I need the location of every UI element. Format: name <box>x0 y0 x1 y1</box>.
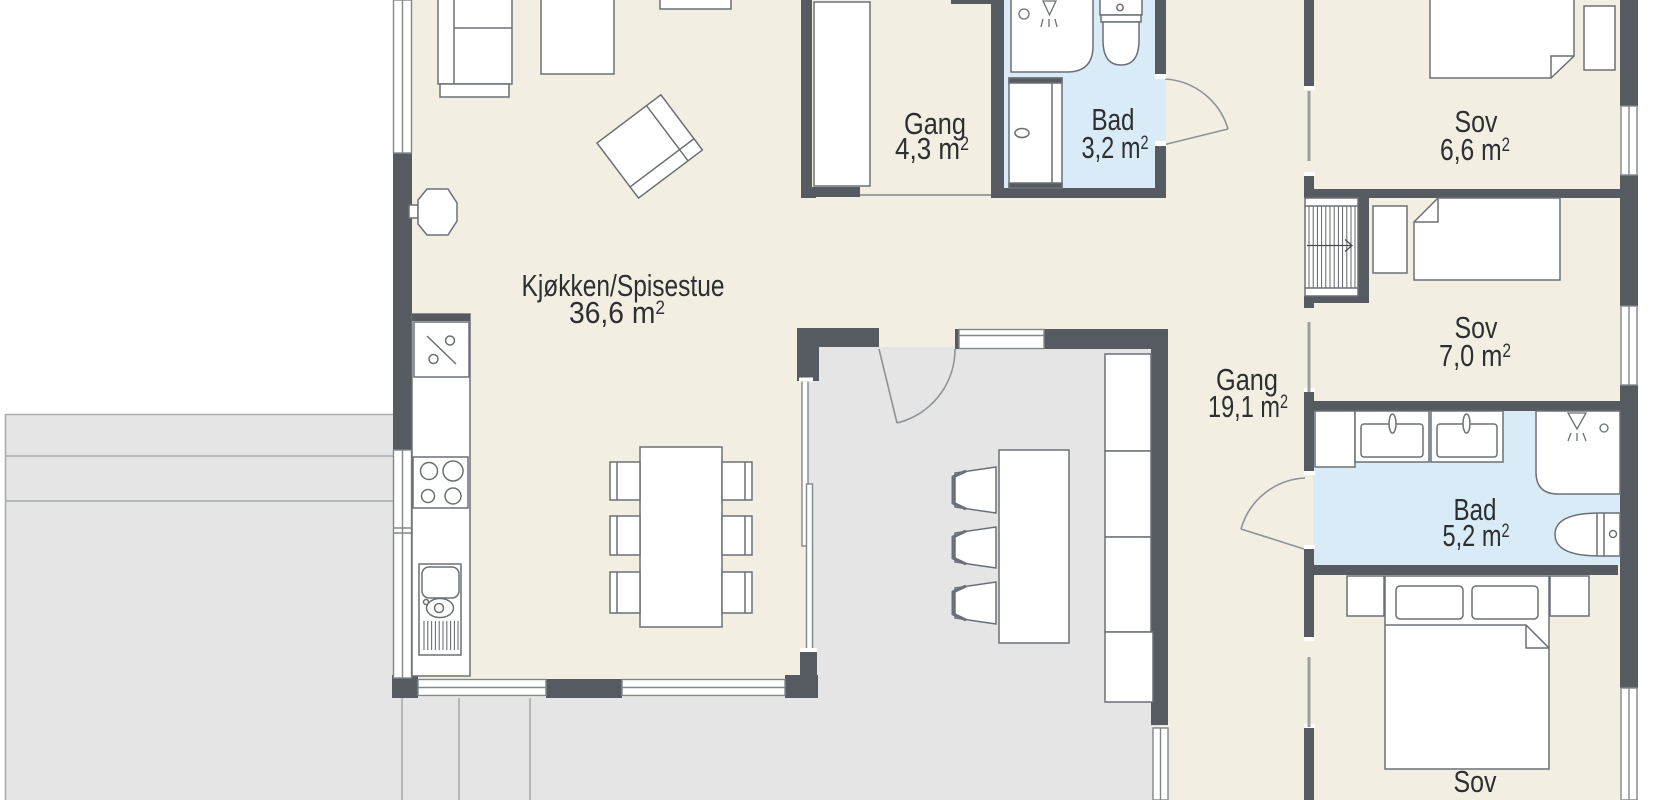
svg-text:3,2 m2: 3,2 m2 <box>1082 130 1149 165</box>
svg-text:7,0 m2: 7,0 m2 <box>1439 338 1511 373</box>
svg-text:4,3 m2: 4,3 m2 <box>895 131 969 166</box>
svg-text:Sov: Sov <box>1454 764 1497 799</box>
svg-text:19,1 m2: 19,1 m2 <box>1208 389 1288 424</box>
svg-text:36,6 m2: 36,6 m2 <box>569 295 665 330</box>
svg-text:5,2 m2: 5,2 m2 <box>1443 518 1510 553</box>
svg-text:6,6 m2: 6,6 m2 <box>1440 132 1510 167</box>
